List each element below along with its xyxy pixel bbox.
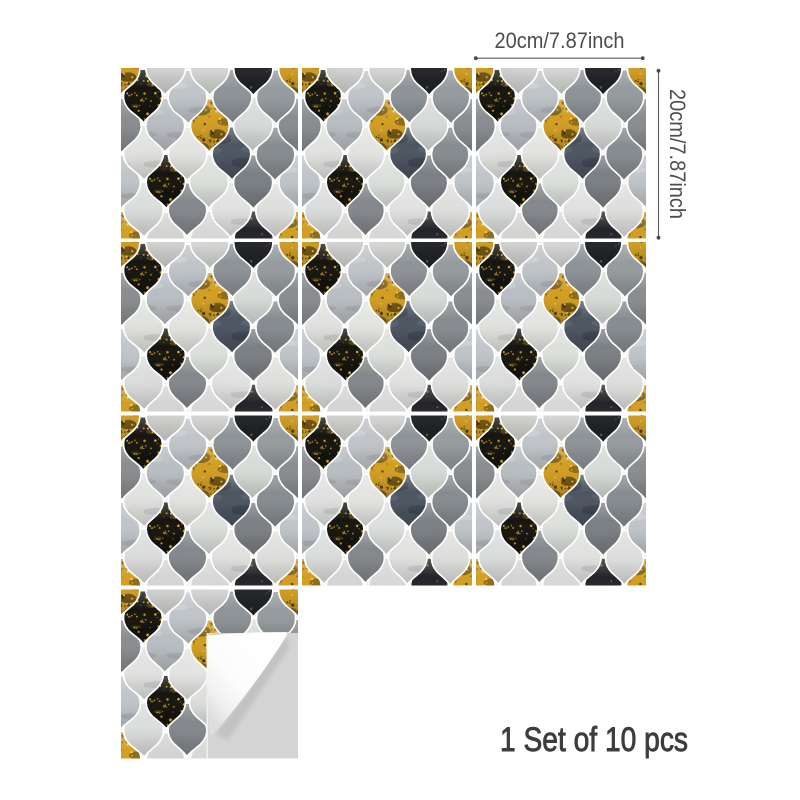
svg-text:1 Set of 10 pcs: 1 Set of 10 pcs bbox=[500, 721, 688, 759]
svg-text:20cm/7.87inch: 20cm/7.87inch bbox=[665, 89, 690, 219]
svg-text:20cm/7.87inch: 20cm/7.87inch bbox=[495, 28, 625, 53]
